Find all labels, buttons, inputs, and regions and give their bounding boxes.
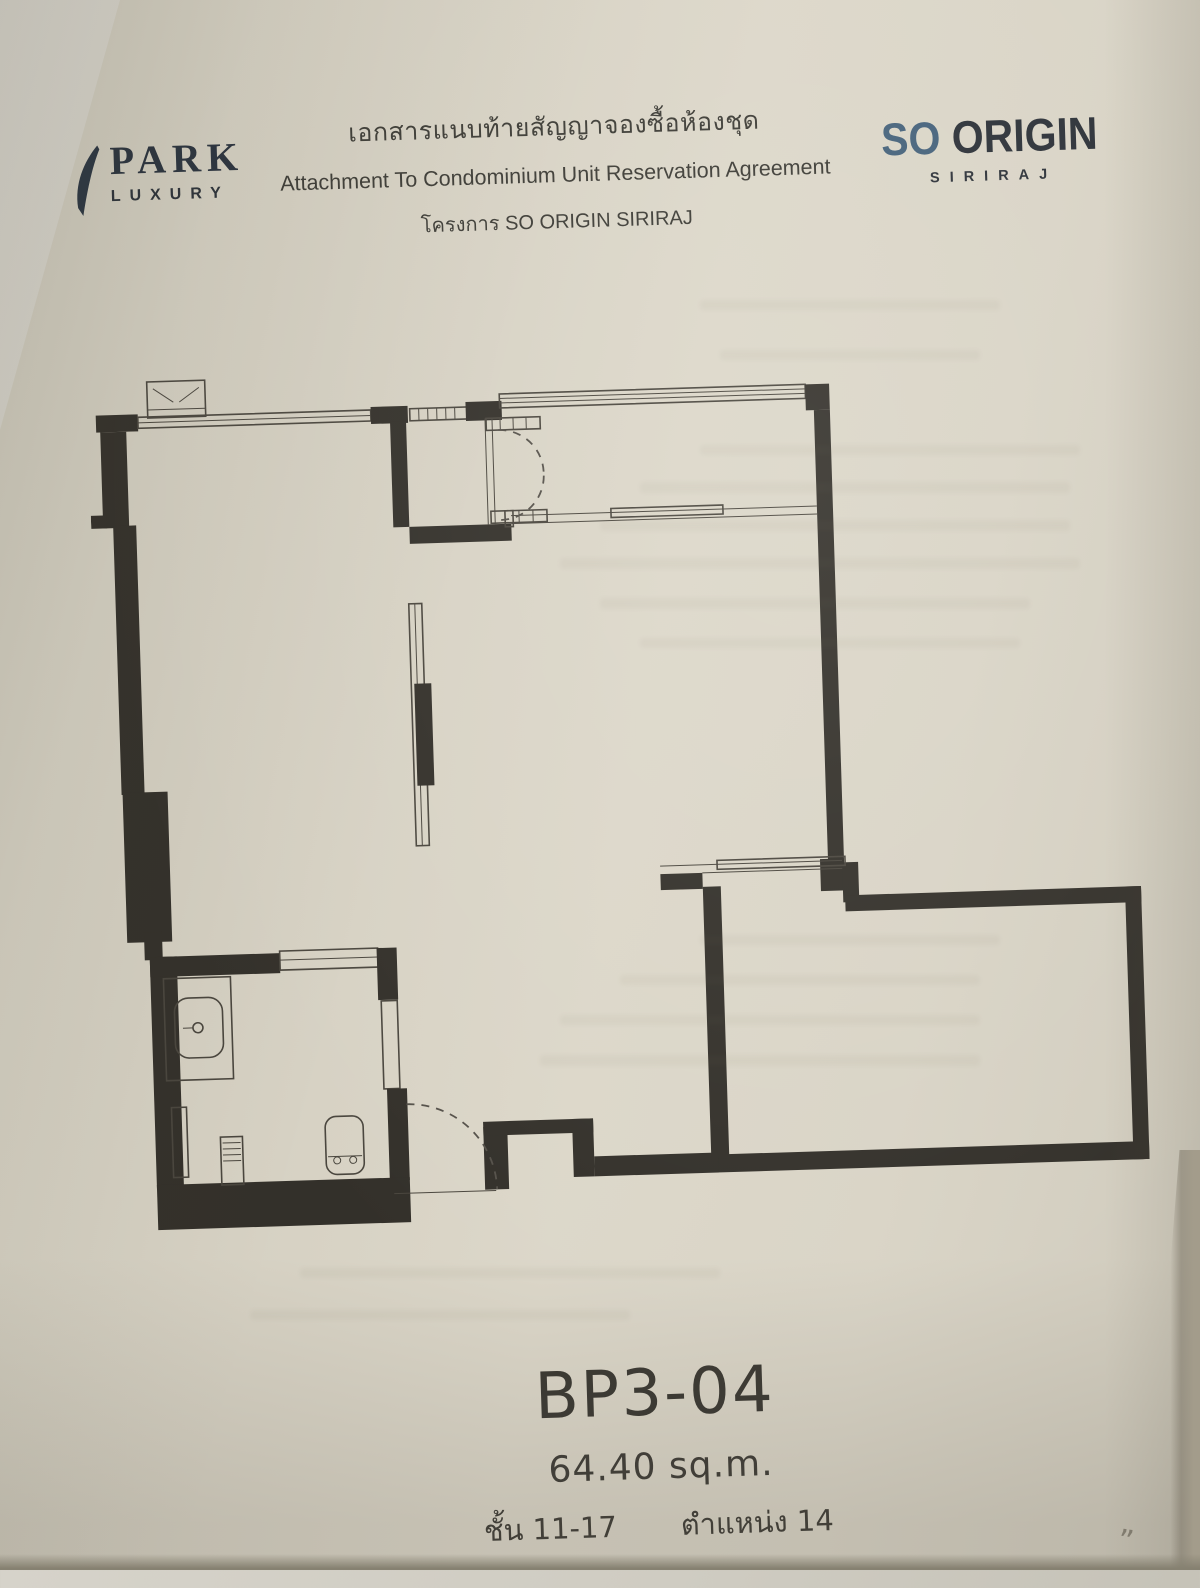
page-content: PARK LUXURY เอกสารแนบท้ายสัญญาจองซื้อห้อ… <box>0 0 1200 1588</box>
title-english: Attachment To Condominium Unit Reservati… <box>275 154 836 197</box>
so-logo-secondary: ORIGIN <box>940 107 1099 163</box>
floor-plan-walls <box>87 351 1151 1231</box>
floor-plan <box>86 341 1173 1254</box>
position-label: ตำแหน่ง 14 <box>680 1497 834 1548</box>
park-luxury-logo: PARK LUXURY <box>71 137 246 216</box>
water-heater-icon <box>220 1136 243 1185</box>
so-origin-logo-text: SO ORIGIN <box>880 107 1098 166</box>
hall-counter <box>280 948 379 970</box>
project-name-line: โครงการ SO ORIGIN SIRIRAJ <box>276 196 837 246</box>
floor-label: ชั้น 11-17 <box>483 1504 617 1554</box>
so-logo-primary: SO <box>880 112 941 165</box>
park-logo-text: PARK <box>109 137 245 181</box>
structural-column <box>123 792 173 943</box>
title-thai: เอกสารแนบท้ายสัญญาจองซื้อห้องชุด <box>273 98 834 156</box>
toilet-icon <box>325 1116 365 1175</box>
unit-type-label: BP3-04 <box>534 1353 776 1434</box>
louvre-window <box>410 407 468 421</box>
entry-niche <box>483 1118 595 1189</box>
balcony-sliding-door <box>409 501 818 544</box>
window-balcony <box>499 384 805 408</box>
window-top-left <box>138 410 371 428</box>
header-titles: เอกสารแนบท้ายสัญญาจองซื้อห้องชุด Attachm… <box>273 98 837 246</box>
park-logo-subtext: LUXURY <box>111 184 246 206</box>
so-origin-logo-subtext: SIRIRAJ <box>888 165 1099 188</box>
paper-bottom-edge <box>0 1554 1200 1570</box>
bathroom-sliding-door <box>381 1000 400 1088</box>
so-origin-logo: SO ORIGIN SIRIRAJ <box>880 110 1099 188</box>
ac-condenser-icon <box>147 380 206 418</box>
bedroom-sliding-door <box>660 856 846 890</box>
double-swing-door <box>485 417 547 525</box>
unit-floor-position: ชั้น 11-17 ตำแหน่ง 14 <box>483 1497 834 1554</box>
unit-area-label: 64.40 sq.m. <box>548 1443 774 1491</box>
park-leaf-icon <box>71 145 103 216</box>
